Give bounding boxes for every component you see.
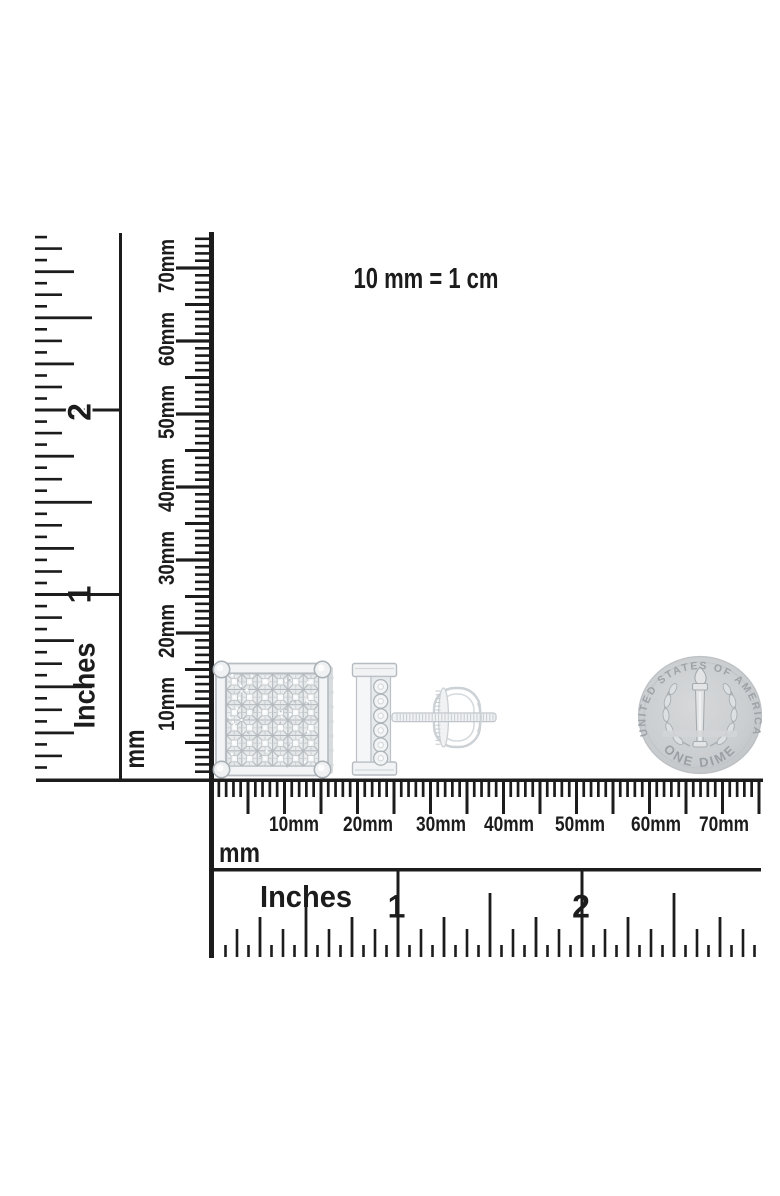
svg-text:1: 1 (388, 889, 406, 925)
svg-text:10mm: 10mm (269, 812, 319, 836)
svg-text:2: 2 (572, 889, 590, 925)
svg-text:50mm: 50mm (154, 385, 179, 439)
svg-text:10mm: 10mm (154, 677, 179, 731)
svg-text:50mm: 50mm (555, 812, 605, 836)
svg-text:2: 2 (62, 403, 98, 421)
svg-text:60mm: 60mm (154, 312, 179, 366)
svg-text:70mm: 70mm (699, 812, 749, 836)
svg-text:30mm: 30mm (416, 812, 466, 836)
svg-text:20mm: 20mm (154, 604, 179, 658)
svg-text:Inches: Inches (69, 643, 102, 729)
svg-text:20mm: 20mm (343, 812, 393, 836)
svg-text:40mm: 40mm (154, 458, 179, 512)
svg-text:30mm: 30mm (154, 531, 179, 585)
svg-text:1: 1 (62, 586, 98, 604)
svg-text:mm: mm (119, 730, 150, 769)
svg-text:10 mm = 1 cm: 10 mm = 1 cm (354, 263, 499, 295)
svg-text:40mm: 40mm (484, 812, 534, 836)
svg-text:60mm: 60mm (631, 812, 681, 836)
svg-text:Inches: Inches (260, 879, 352, 914)
svg-text:70mm: 70mm (154, 239, 179, 293)
svg-text:mm: mm (219, 837, 260, 868)
